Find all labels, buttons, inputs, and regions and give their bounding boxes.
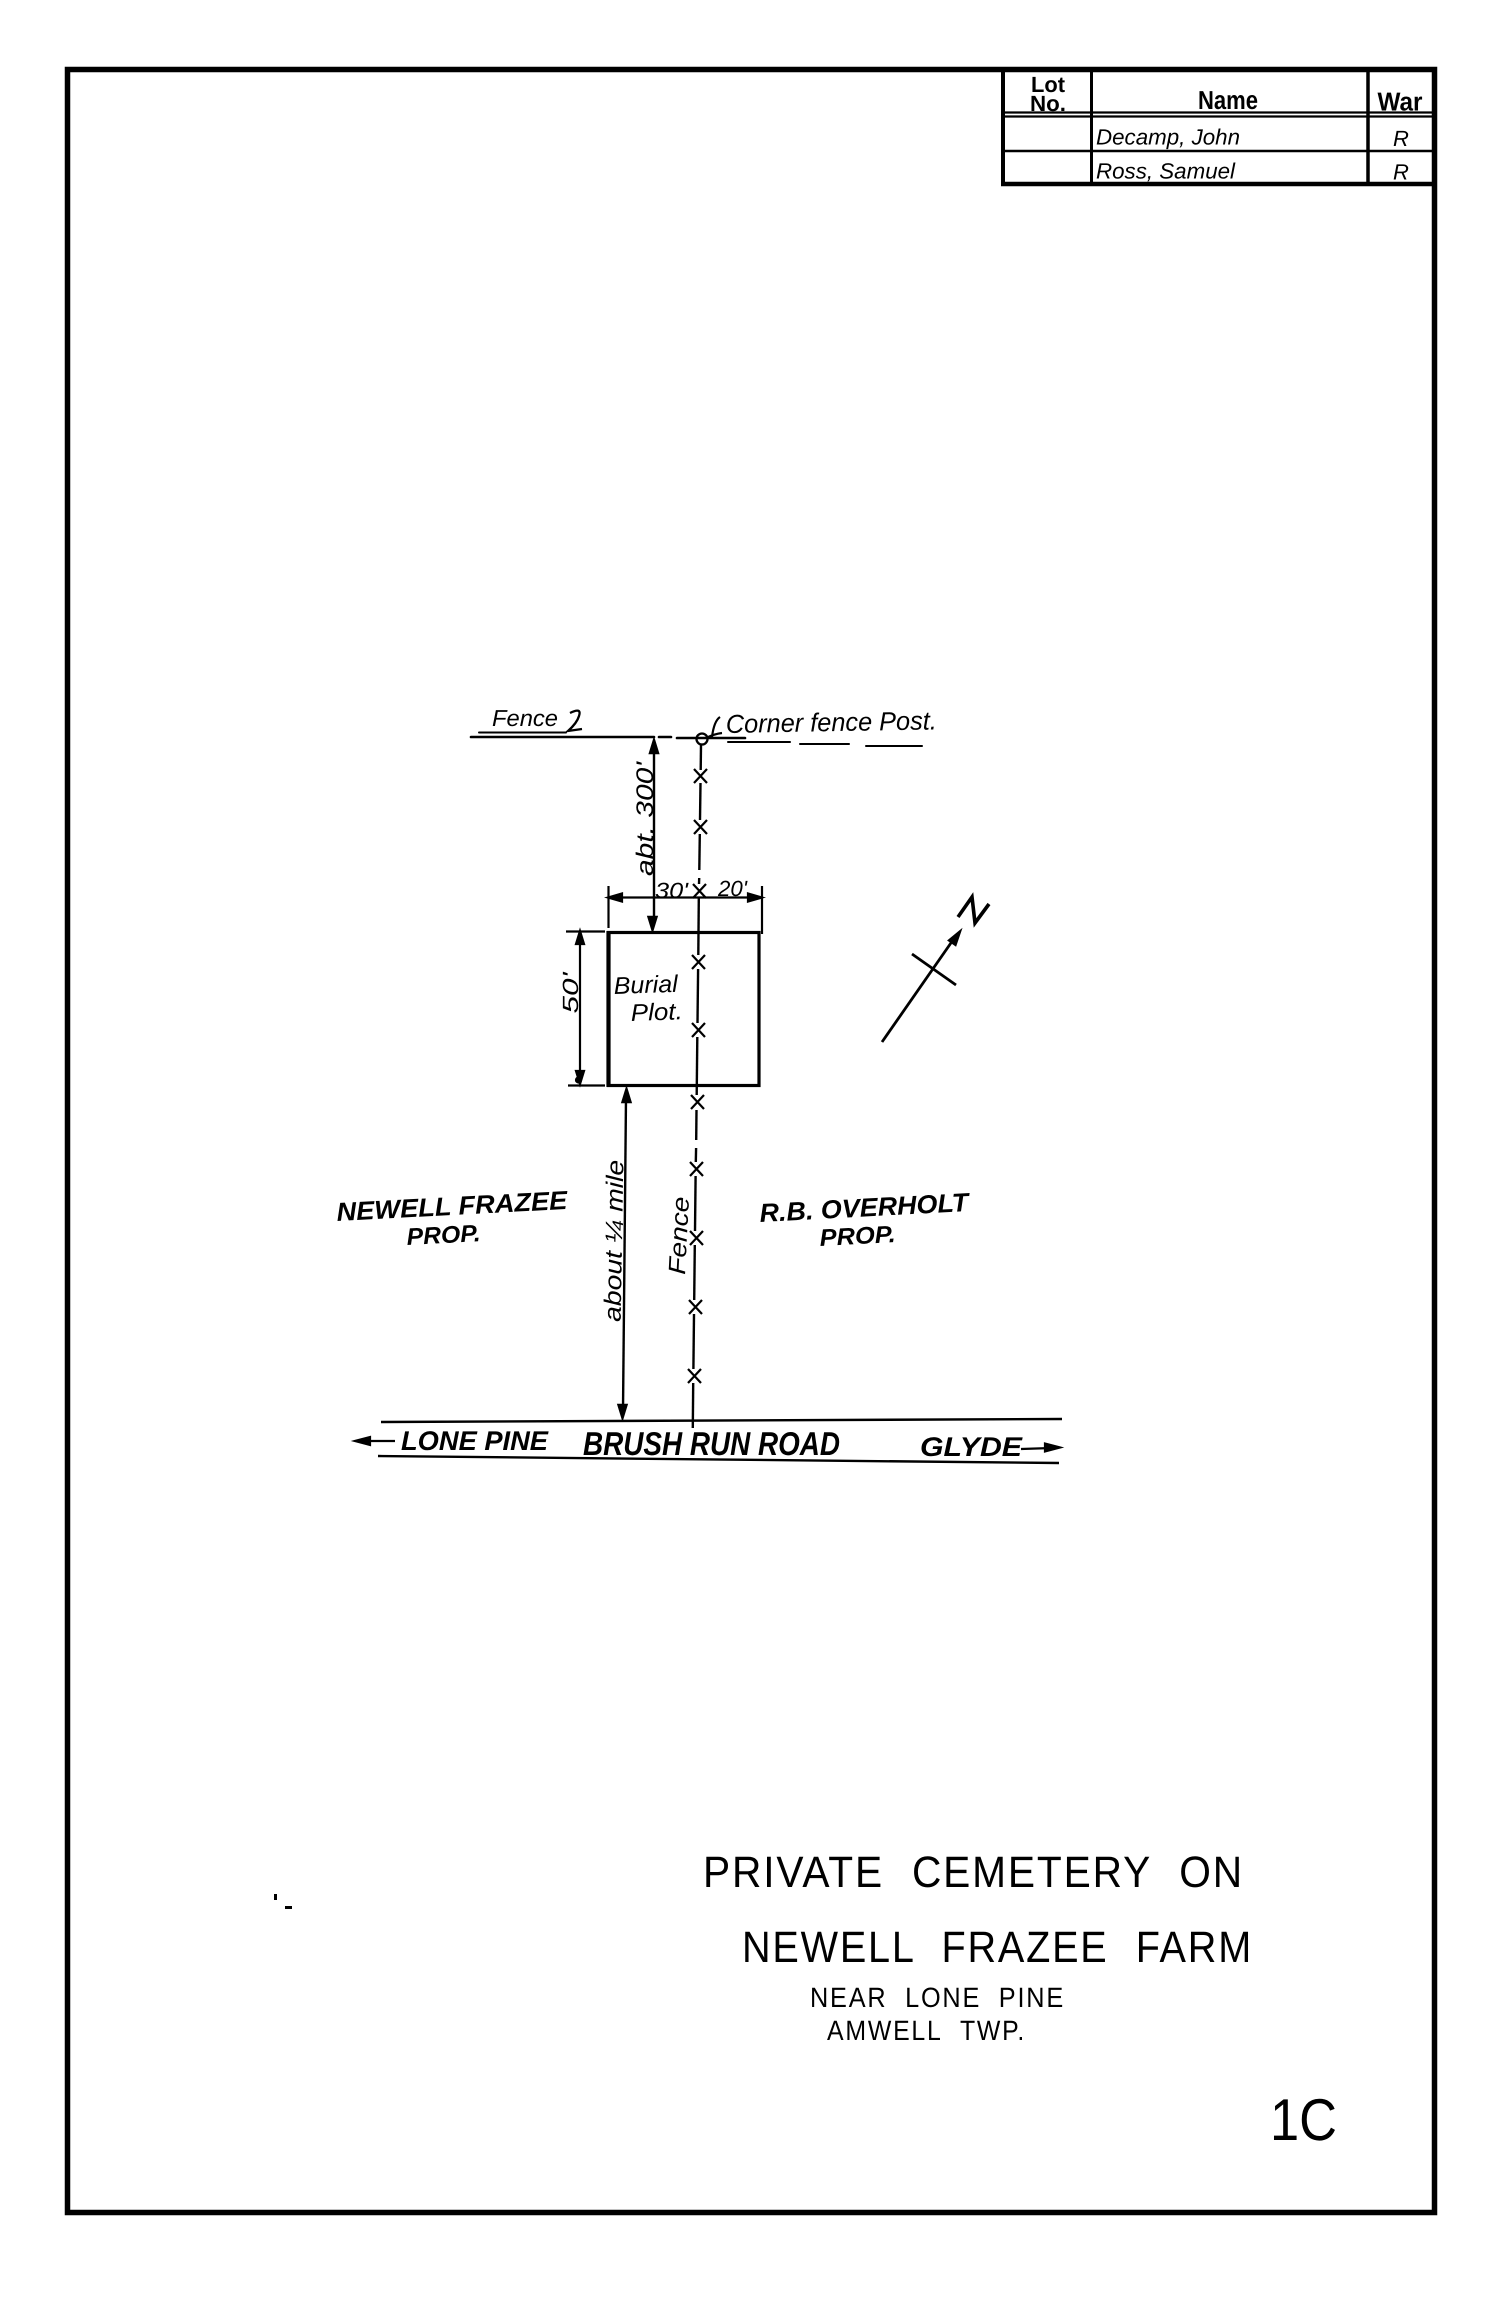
svg-text:Plot.: Plot. [630,998,683,1027]
svg-text:NEWELL FRAZEE FARM: NEWELL FRAZEE FARM [742,1923,1253,1972]
svg-text:Ross, Samuel: Ross, Samuel [1096,159,1236,184]
svg-text:PROP.: PROP. [819,1221,896,1252]
svg-text:No.: No. [1030,91,1066,116]
svg-text:30': 30' [655,878,689,903]
svg-text:Fence: Fence [492,705,558,731]
svg-text:about ¼ mile: about ¼ mile [600,1160,630,1322]
svg-text:50': 50' [558,971,583,1013]
svg-text:War: War [1378,87,1423,117]
svg-text:abt. 300': abt. 300' [632,760,659,876]
svg-text:PRIVATE CEMETERY ON: PRIVATE CEMETERY ON [703,1848,1244,1897]
svg-text:Decamp, John: Decamp, John [1096,125,1240,150]
svg-text:R: R [1393,126,1409,151]
svg-text:BRUSH RUN ROAD: BRUSH RUN ROAD [583,1425,840,1462]
svg-text:GLYDE: GLYDE [920,1432,1023,1462]
svg-text:20': 20' [717,876,748,901]
svg-text:Name: Name [1198,85,1258,115]
svg-text:Corner fence Post.: Corner fence Post. [726,705,937,739]
svg-text:Fence: Fence [664,1196,695,1275]
svg-text:R: R [1393,160,1409,185]
svg-text:NEAR LONE PINE: NEAR LONE PINE [810,1982,1065,2013]
svg-text:PROP.: PROP. [406,1220,481,1251]
svg-text:1C: 1C [1270,2087,1337,2153]
svg-text:LONE PINE: LONE PINE [401,1426,549,1456]
svg-text:AMWELL TWP.: AMWELL TWP. [827,2015,1026,2046]
svg-text:Burial: Burial [613,971,679,1000]
